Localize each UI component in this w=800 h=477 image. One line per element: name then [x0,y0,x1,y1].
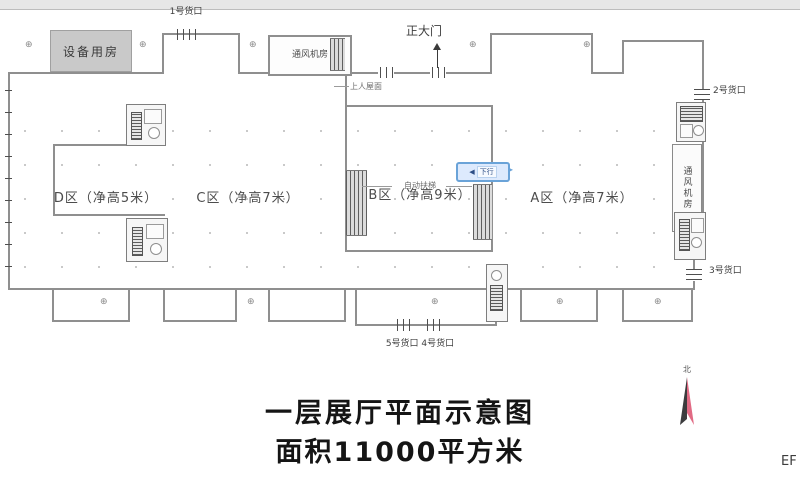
equipment-cell [680,124,693,138]
wall-segment [128,288,130,322]
door-tick [438,67,439,78]
column-dot [246,164,248,166]
column-dash [5,112,12,113]
wall-segment [355,324,497,326]
wall-segment [345,105,493,107]
column-dot [357,130,359,132]
floor-plan-page: 设备用房 通风机房 通风机房 D区（净高5米） C区（净高7米） B区（净高9米… [0,0,800,477]
column-dash [5,200,12,201]
door-tick [427,319,428,331]
loading-door-1-label: 1号货口 [156,7,216,17]
marker-left-arrow-icon: ◀ [469,168,474,176]
wall-segment [622,40,704,42]
column-dot [283,130,285,132]
door-tick [189,29,190,40]
column-dot [61,232,63,234]
column-dot [283,164,285,166]
column-dot [542,266,544,268]
column-dot [61,130,63,132]
zone-b-label: B区（净高9米） [358,189,482,204]
column-dot [468,266,470,268]
wall-segment [622,320,693,322]
grid-marker-icon: ⊕ [139,40,149,50]
column-dot [172,130,174,132]
column-dot [135,266,137,268]
column-dot [616,266,618,268]
wall-segment [345,250,493,252]
column-dash [5,222,12,223]
column-dash [5,134,12,135]
column-dot [24,164,26,166]
grid-marker-icon: ⊕ [25,40,35,50]
wall-segment [8,72,10,290]
column-dot [98,130,100,132]
wall-segment [520,320,598,322]
column-dot [172,164,174,166]
column-dot [542,164,544,166]
column-dot [209,164,211,166]
column-dot [653,130,655,132]
column-dot [246,266,248,268]
column-dot [24,232,26,234]
column-dot [394,164,396,166]
door-tick [694,99,710,100]
elevator-shaft [144,109,162,124]
wall-segment [490,33,593,35]
door-tick [433,319,434,331]
stairs-icon [679,219,690,251]
compass: 北 [672,364,702,430]
marker-text: 下行 [477,166,497,178]
column-dot [320,232,322,234]
wall-segment [593,72,624,74]
wall-segment [52,288,54,322]
column-dash [5,244,12,245]
column-dot [24,130,26,132]
column-dot [579,130,581,132]
door-tick [694,89,710,90]
column-dot [653,198,655,200]
wall-segment [691,288,693,322]
escalator-leader-right [446,186,472,187]
column-dot [246,232,248,234]
main-gate-arrow-shaft [437,50,438,68]
roof-access-leader [334,86,349,87]
door-tick [397,319,398,331]
plan-title-line2: 面积11000平方米 [150,430,650,469]
column-dot [172,198,174,200]
door-tick [686,269,702,270]
elevator-circle-icon [491,270,502,281]
door-tick [403,319,404,331]
column-dot [505,130,507,132]
elevator-circle-icon [150,243,162,255]
column-dash [5,266,12,267]
wall-segment [622,40,624,74]
wall-segment [490,33,492,74]
column-dot [320,164,322,166]
column-dash [5,90,12,91]
loading-door-2-label: 2号货口 [713,86,746,96]
door-tick [686,279,702,280]
column-dot [653,232,655,234]
wall-segment [52,320,130,322]
wall-segment [596,288,598,322]
escalator-label: 自动扶梯 [394,181,446,190]
selection-marker[interactable]: ◀ 下行 [456,162,510,182]
door-tick [439,319,440,331]
escalator-leader-left [362,186,392,187]
grid-marker-icon: ⊕ [556,297,566,307]
wall-segment [163,288,165,322]
elevator-circle-icon [691,237,702,248]
stairs-icon [490,285,503,311]
grid-marker-icon: ⊕ [583,40,593,50]
column-dot [653,164,655,166]
wall-segment [268,320,346,322]
elevator-circle-icon [693,125,704,136]
equipment-grid-icon [680,106,703,122]
title-block: 一层展厅平面示意图 面积11000平方米 [150,391,650,469]
wall-segment [355,288,357,326]
column-dot [283,266,285,268]
fan-room-right-label: 通风机房 [681,166,694,210]
wall-segment [702,76,704,90]
equipment-cell [691,218,704,233]
grid-marker-icon: ⊕ [247,297,257,307]
column-dot [542,232,544,234]
column-dot [172,232,174,234]
door-tick [686,274,702,275]
column-dot [283,232,285,234]
column-dot [616,130,618,132]
column-dot [468,232,470,234]
loading-door-45-label: 5号货口 4号货口 [370,339,470,349]
elevator-circle-icon [148,127,160,139]
grid-marker-icon: ⊕ [469,40,479,50]
column-dot [468,130,470,132]
column-dot [394,232,396,234]
door-tick [195,29,196,40]
column-dot [579,164,581,166]
column-dot [431,130,433,132]
door-tick [432,67,433,78]
equipment-room-label: 设备用房 [63,43,119,60]
wall-segment [8,72,164,74]
column-dot [98,164,100,166]
wall-segment [520,288,522,322]
column-dot [320,266,322,268]
zone-c-label: C区（净高7米） [183,192,313,207]
wall-segment [162,33,164,74]
door-tick [694,94,710,95]
column-dot [172,266,174,268]
column-dot [616,164,618,166]
door-tick [386,67,387,78]
service-core-center [486,264,508,322]
main-gate-label: 正大门 [396,25,452,39]
column-dot [579,266,581,268]
column-dot [357,266,359,268]
column-dot [505,232,507,234]
door-tick [392,67,393,78]
wall-segment [348,72,492,74]
zone-a-label: A区（净高7米） [518,192,646,207]
stair-core-se [674,212,706,260]
column-dot [579,232,581,234]
roof-access-label: 上人屋面 [350,82,382,91]
column-dot [209,130,211,132]
equipment-room: 设备用房 [50,30,132,72]
column-dot [24,198,26,200]
main-gate-arrow-icon [433,43,441,50]
column-dot [61,266,63,268]
column-dot [357,164,359,166]
column-dot [320,130,322,132]
column-dot [209,266,211,268]
column-dot [431,266,433,268]
compass-needle-left [680,377,687,425]
stair-core-sw [126,218,168,262]
column-dot [653,266,655,268]
column-dot [98,266,100,268]
column-dot [616,232,618,234]
stairs-icon [131,112,142,140]
wall-segment [702,40,704,76]
wall-segment [238,33,240,74]
door-tick [183,29,184,40]
wall-segment [163,320,237,322]
compass-north-label: 北 [672,364,702,375]
fan-room-top-label: 通风机房 [292,50,328,60]
door-tick [380,67,381,78]
door-tick [177,29,178,40]
column-dash [5,156,12,157]
zone-d-label: D区（净高5米） [46,192,166,207]
floor-plan: 设备用房 通风机房 通风机房 D区（净高5米） C区（净高7米） B区（净高9米… [0,0,800,360]
column-dot [246,130,248,132]
stairs-icon [132,227,143,256]
wall-segment [235,288,237,322]
door-tick [444,67,445,78]
grid-marker-icon: ⊕ [654,297,664,307]
grid-marker-icon: ⊕ [249,40,259,50]
column-dot [98,232,100,234]
compass-needle-icon [676,375,698,429]
column-dot [431,232,433,234]
column-dot [61,164,63,166]
wall-segment [268,288,270,322]
watermark-ef: EF [781,454,797,469]
column-dot [24,266,26,268]
wall-segment [622,288,624,322]
plan-title-line1: 一层展厅平面示意图 [150,391,650,430]
wall-segment [162,33,240,35]
wall-segment [8,288,695,290]
column-dash [5,178,12,179]
grid-marker-icon: ⊕ [100,297,110,307]
grid-marker-icon: ⊕ [431,297,441,307]
column-dot [209,232,211,234]
marker-right-arrow-icon[interactable]: ▸ [509,165,513,174]
loading-door-3-label: 3号货口 [709,266,742,276]
compass-needle-right [687,377,694,425]
column-dot [431,164,433,166]
column-dot [320,198,322,200]
equipment-core-ne [676,102,706,142]
elevator-shaft [146,224,164,239]
column-dot [542,130,544,132]
column-dot [135,164,137,166]
wall-segment [53,214,165,216]
column-dot [394,266,396,268]
column-dot [505,198,507,200]
wall-segment [344,288,346,322]
column-dot [394,130,396,132]
stair-core-nw [126,104,166,146]
door-tick [409,319,410,331]
vent-grille-icon [330,38,345,71]
